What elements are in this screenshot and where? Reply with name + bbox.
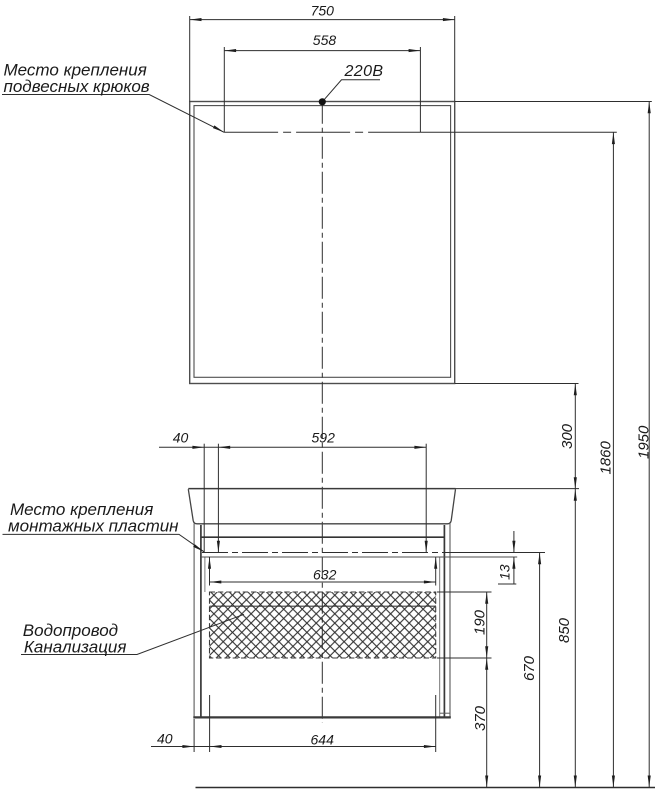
svg-text:670: 670 xyxy=(521,655,538,681)
svg-text:370: 370 xyxy=(472,705,489,731)
svg-text:558: 558 xyxy=(313,32,337,48)
svg-text:220В: 220В xyxy=(344,63,384,80)
svg-text:40: 40 xyxy=(173,430,189,446)
svg-text:644: 644 xyxy=(311,732,335,748)
svg-text:подвесных крюков: подвесных крюков xyxy=(4,77,150,96)
svg-text:300: 300 xyxy=(559,423,576,449)
svg-text:1860: 1860 xyxy=(598,440,615,474)
svg-text:Канализация: Канализация xyxy=(24,638,127,657)
svg-text:монтажных пластин: монтажных пластин xyxy=(8,517,179,536)
svg-text:40: 40 xyxy=(157,731,173,747)
svg-text:13: 13 xyxy=(497,564,513,580)
svg-text:750: 750 xyxy=(311,3,335,19)
svg-text:592: 592 xyxy=(312,430,336,446)
svg-text:632: 632 xyxy=(313,567,337,583)
svg-text:1950: 1950 xyxy=(636,425,653,459)
svg-text:850: 850 xyxy=(556,617,573,643)
svg-text:190: 190 xyxy=(472,609,489,635)
